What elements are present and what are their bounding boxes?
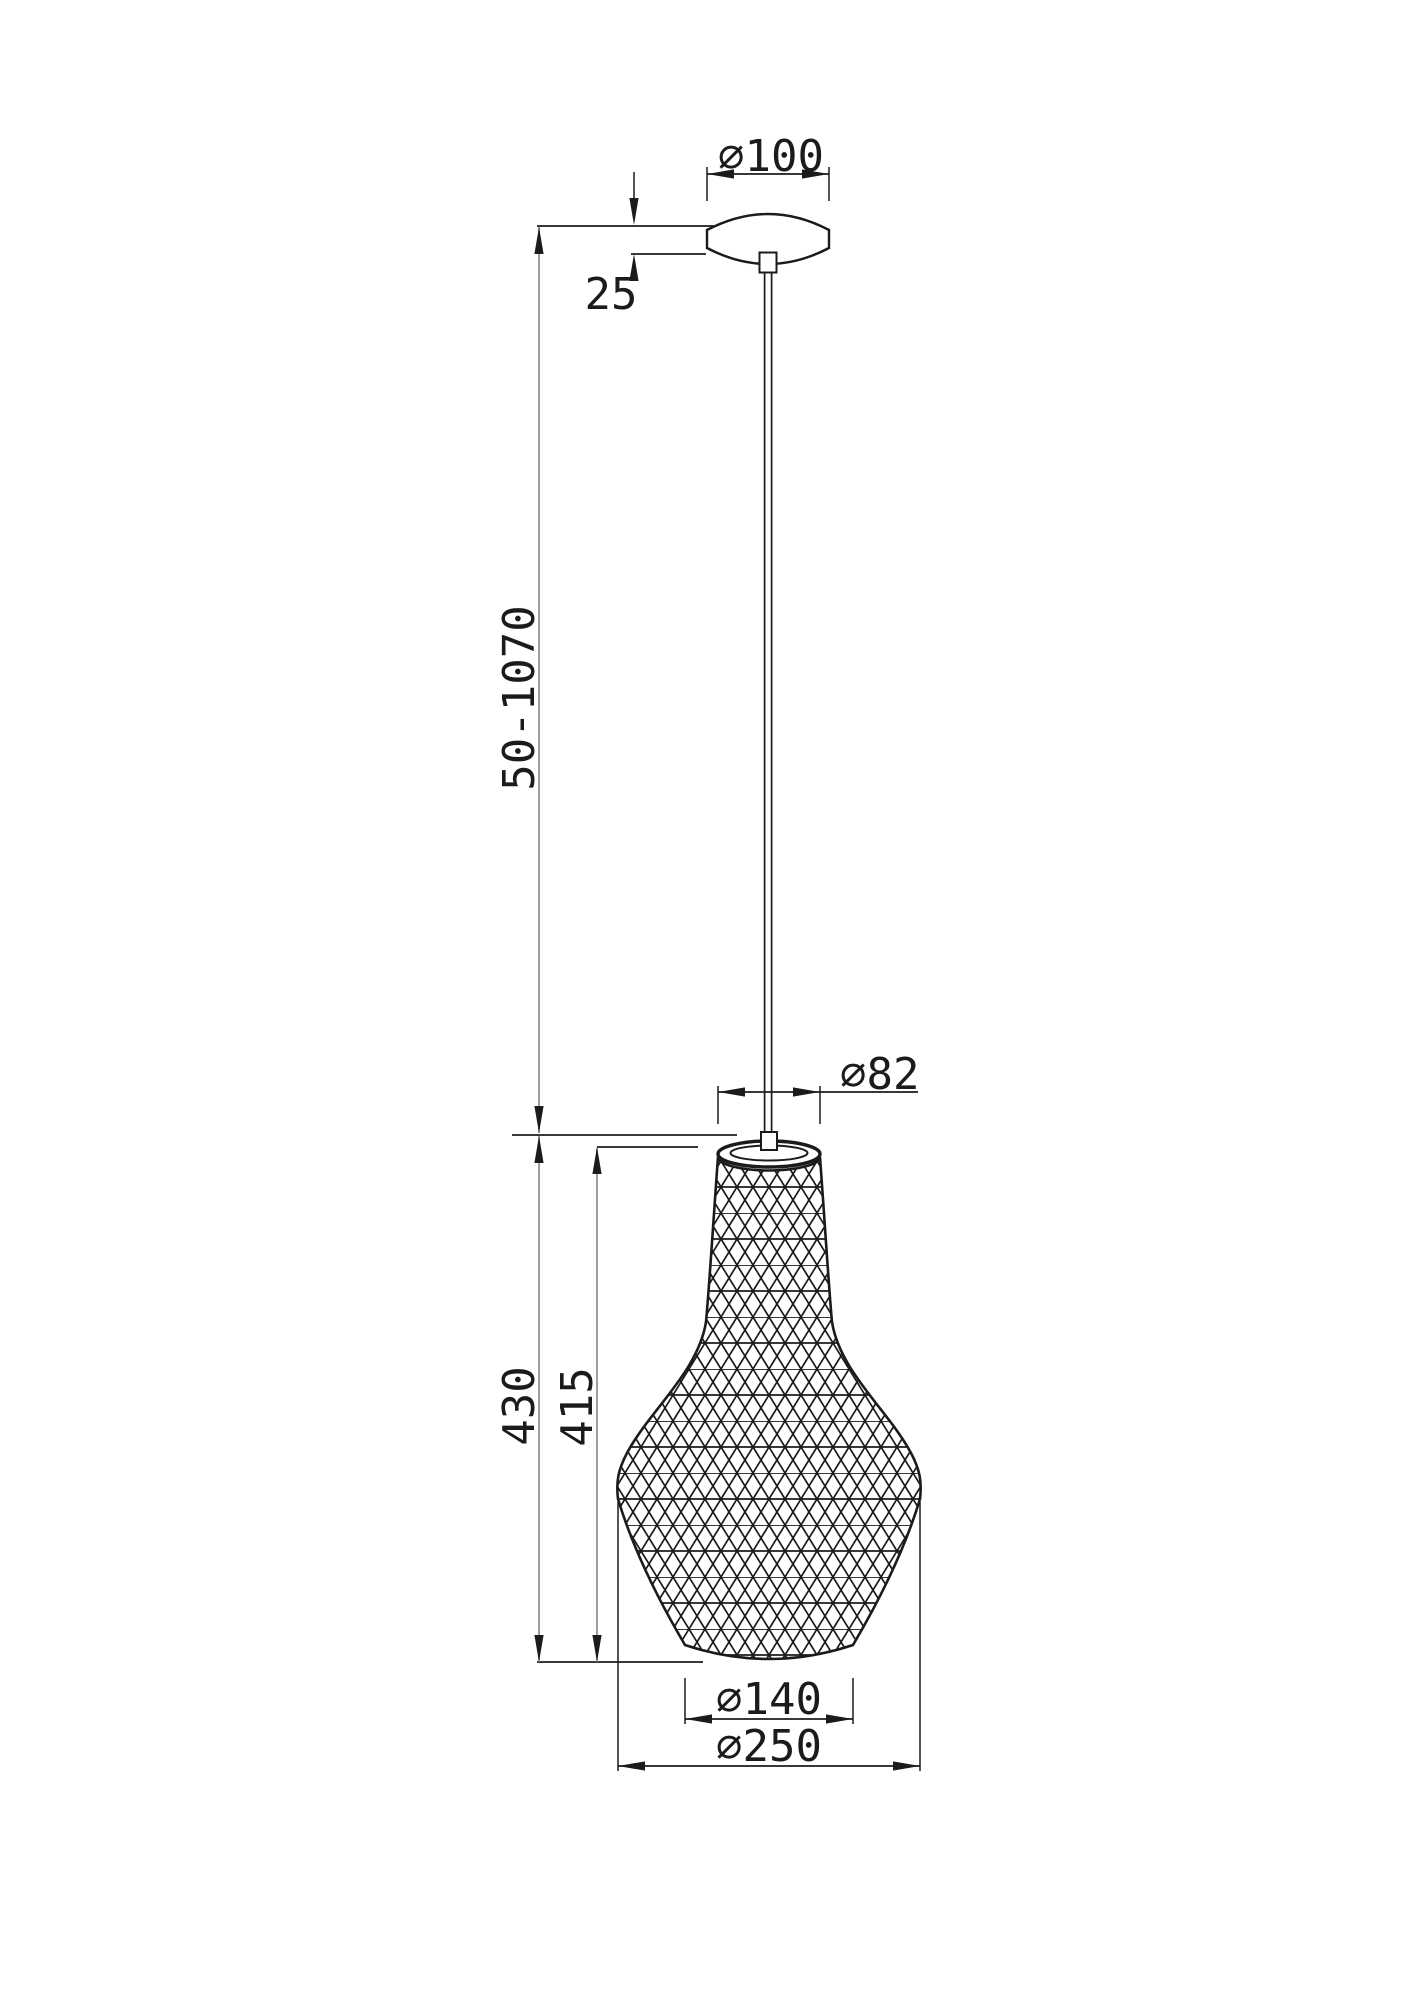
arrow-right-icon [793,1087,820,1096]
suspension-rod [765,271,772,1133]
shade-max-diameter-label: ⌀250 [716,1721,822,1772]
dim-canopy-height: 25 [537,172,714,320]
pendant-lamp-drawing: ⌀100 25 50-1070 ⌀82 430 4 [0,0,1413,2000]
arrow-left-icon [685,1714,712,1723]
arrow-left-icon [718,1087,745,1096]
arrow-up-icon [534,227,543,254]
suspension-range-label: 50-1070 [494,605,545,790]
arrow-down-icon [534,1635,543,1662]
bottom-opening-label: ⌀140 [716,1674,822,1725]
dim-neck-diameter: ⌀82 [718,1049,919,1124]
arrow-down-icon [629,198,638,225]
shade-body [617,1157,920,1659]
canopy-diameter-label: ⌀100 [718,131,824,182]
arrow-right-icon [826,1714,853,1723]
lamp-object [617,214,920,1659]
shade-connector [761,1132,777,1150]
arrow-down-icon [592,1635,601,1662]
dim-canopy-diameter: ⌀100 [707,131,829,201]
arrow-right-icon [893,1761,920,1770]
dim-bottom-opening: ⌀140 [685,1674,853,1725]
neck-diameter-label: ⌀82 [840,1049,919,1100]
shade-height-body-label: 415 [552,1367,603,1446]
arrow-up-icon [534,1136,543,1163]
arrow-left-icon [618,1761,645,1770]
shade-height-total-label: 430 [494,1366,545,1445]
canopy-connector [760,253,777,273]
technical-drawing-page: ⌀100 25 50-1070 ⌀82 430 4 [0,0,1413,2000]
canopy-height-label: 25 [585,269,638,320]
dim-suspension-range: 50-1070 [494,227,545,1133]
arrow-up-icon [592,1147,601,1174]
arrow-down-icon [534,1106,543,1133]
